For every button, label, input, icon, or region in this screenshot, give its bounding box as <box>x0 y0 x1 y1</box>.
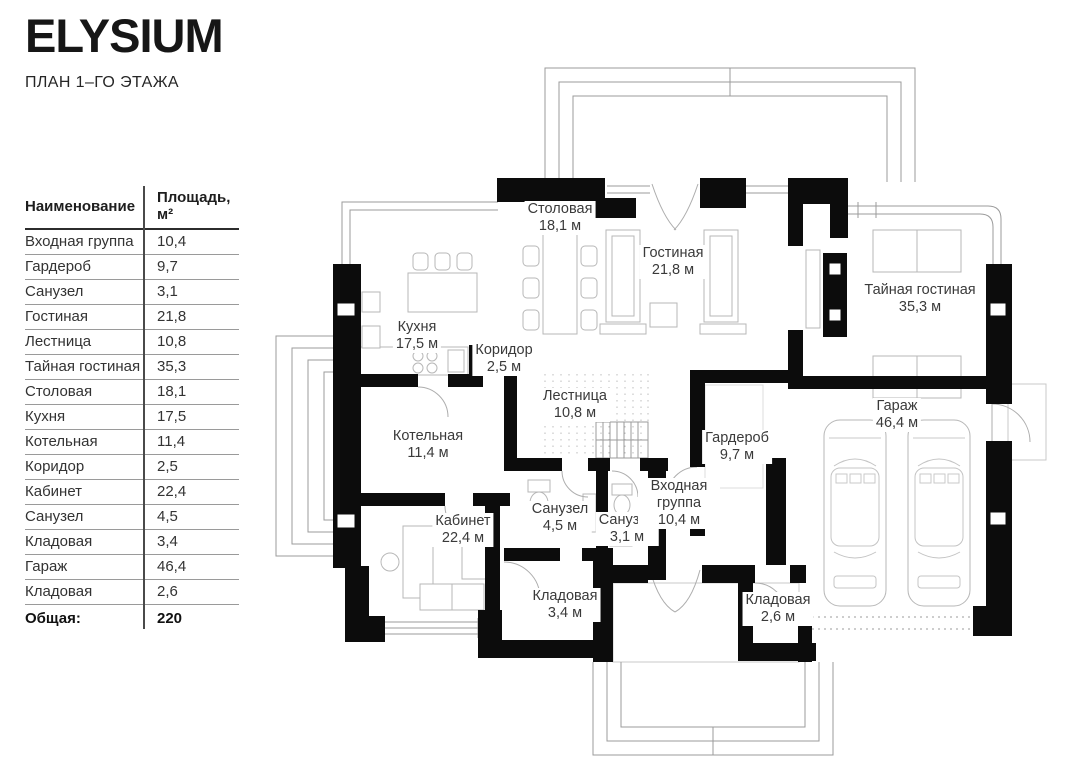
room-label-kuhnya: Кухня 17,5 м <box>393 319 441 353</box>
room-label-sanuzel-1: Санузел 4,5 м <box>529 501 592 535</box>
room-label-garderob: Гардероб 9,7 м <box>702 430 772 464</box>
room-label-stolovaya: Столовая 18,1 м <box>525 201 596 235</box>
room-label-garazh: Гараж 46,4 м <box>873 398 921 432</box>
room-label-kotelnaya: Котельная 11,4 м <box>390 428 466 462</box>
room-label-kladovaya-1: Кладовая 3,4 м <box>530 588 601 622</box>
room-label-koridor: Коридор 2,5 м <box>472 342 535 376</box>
room-label-kabinet: Кабинет 22,4 м <box>432 513 493 547</box>
floor-plan-drawing <box>0 0 1072 768</box>
room-label-gostinaya: Гостиная 21,8 м <box>640 245 707 279</box>
room-label-taynaya-gostinaya: Тайная гостиная 35,3 м <box>861 282 978 316</box>
terrace-outlines <box>276 68 1046 755</box>
room-label-lestnitsa: Лестница 10,8 м <box>540 388 610 422</box>
room-label-kladovaya-2: Кладовая 2,6 м <box>743 592 814 626</box>
room-label-vhodnaya-gruppa: Входная группа 10,4 м <box>638 478 720 529</box>
